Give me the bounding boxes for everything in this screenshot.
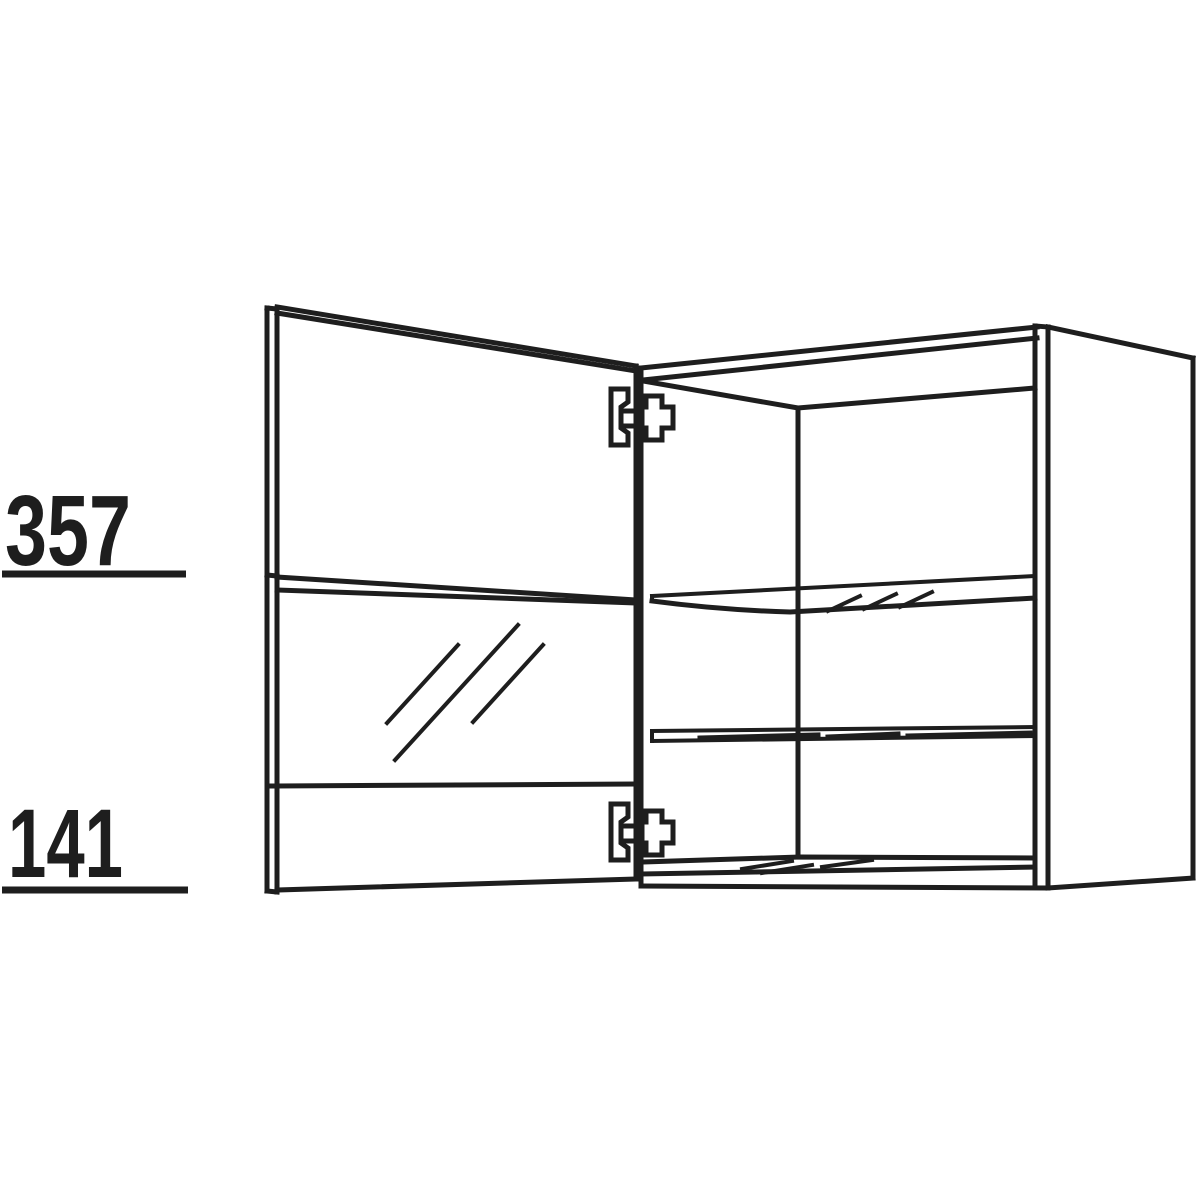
top-hinge-mounting-plate <box>642 396 673 440</box>
carcass-top-right-outer-slant <box>1048 327 1193 358</box>
dimension-annotations: 357 141 <box>2 475 188 898</box>
wooden-shelf-top-edge <box>652 727 1035 731</box>
glass-pane-reflections <box>387 625 543 760</box>
wooden-shelf <box>652 727 1035 741</box>
bottom-panel <box>642 857 1035 874</box>
carcass-bottom-front-edge <box>641 886 1048 888</box>
carcass-top-front-edge-upper <box>641 327 1037 368</box>
bottom-hinge-mounting-plate <box>642 811 673 855</box>
door-bottom-edge <box>277 879 636 890</box>
glass-shelf-back-edge <box>652 576 1035 596</box>
carcass-top-interior-edges <box>643 381 1035 408</box>
door-frame <box>277 307 636 890</box>
carcass-bottom-right-outer-slant <box>1048 878 1193 888</box>
dimension-label-357: 357 <box>5 475 131 587</box>
bottom-panel-front-edge <box>642 867 1035 874</box>
glass-shelf <box>652 576 1035 612</box>
dimension-label-141: 141 <box>8 789 123 898</box>
bottom-panel-back-edge <box>642 857 1035 862</box>
door-edge-strip <box>267 308 277 892</box>
cabinet-door <box>267 307 636 892</box>
carcass-top-front-edge-lower <box>643 338 1037 380</box>
door-top-edge-upper <box>277 307 636 366</box>
door-bottom-rail-edge <box>277 784 636 786</box>
cabinet-drawing <box>267 307 1193 892</box>
door-top-edge-lower <box>277 313 636 371</box>
drawing-canvas: 357 141 <box>0 0 1200 1200</box>
cabinet-technical-drawing: 357 141 <box>0 0 1200 1200</box>
